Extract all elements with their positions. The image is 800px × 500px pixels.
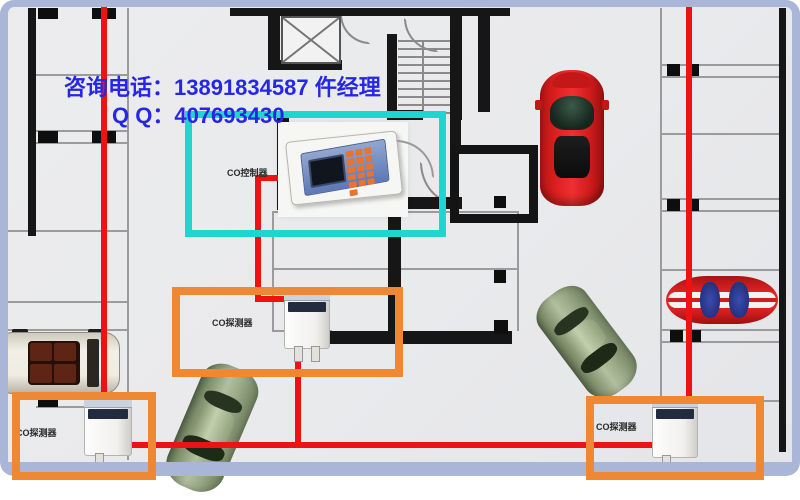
striped-race-car: [666, 276, 778, 324]
parking-line: [660, 76, 779, 78]
parking-line: [517, 211, 519, 331]
car-windshield: [550, 96, 594, 130]
pillar: [38, 131, 58, 143]
parking-line: [660, 8, 662, 450]
detector-highlight-box: [172, 287, 403, 377]
pillar: [38, 8, 58, 19]
wall-segment: [387, 34, 397, 120]
detector-highlight-box: [586, 396, 764, 480]
car-interior: [28, 341, 80, 386]
contact-qq-text: Q Q：407693430: [112, 98, 284, 130]
pillar: [494, 196, 506, 208]
wall-segment: [450, 100, 461, 150]
utility-room: [450, 145, 538, 223]
pillar: [494, 320, 508, 334]
parking-line: [8, 301, 128, 303]
pillar: [667, 199, 680, 211]
car-seat: [30, 364, 52, 383]
pillar: [667, 64, 680, 76]
car-windshield: [700, 282, 720, 318]
car-seat: [30, 343, 52, 362]
detector-highlight-box: [12, 392, 156, 480]
staircase: [398, 40, 450, 114]
car-seat: [54, 343, 76, 362]
parking-line: [660, 133, 779, 135]
elevator-shaft: [281, 16, 341, 64]
wall-segment: [478, 8, 490, 112]
pillar: [494, 270, 506, 283]
car-engine-cover: [554, 136, 590, 178]
car-mirror: [602, 100, 609, 110]
wall-segment: [28, 8, 36, 236]
car-windshield: [87, 339, 99, 387]
wire-bottom-bus: [88, 442, 664, 448]
car-mirror: [535, 100, 542, 110]
wire-left-riser: [101, 6, 107, 410]
wall-segment: [779, 8, 786, 452]
car-rear-window: [729, 282, 749, 318]
red-sports-car: [540, 70, 604, 206]
parking-line: [8, 230, 128, 232]
car-racing-stripe: [668, 292, 776, 307]
parking-line: [660, 269, 779, 271]
wire-right-riser: [686, 6, 692, 404]
car-seat: [54, 364, 76, 383]
elevator-x-icon: [283, 18, 339, 62]
pillar: [670, 330, 683, 342]
